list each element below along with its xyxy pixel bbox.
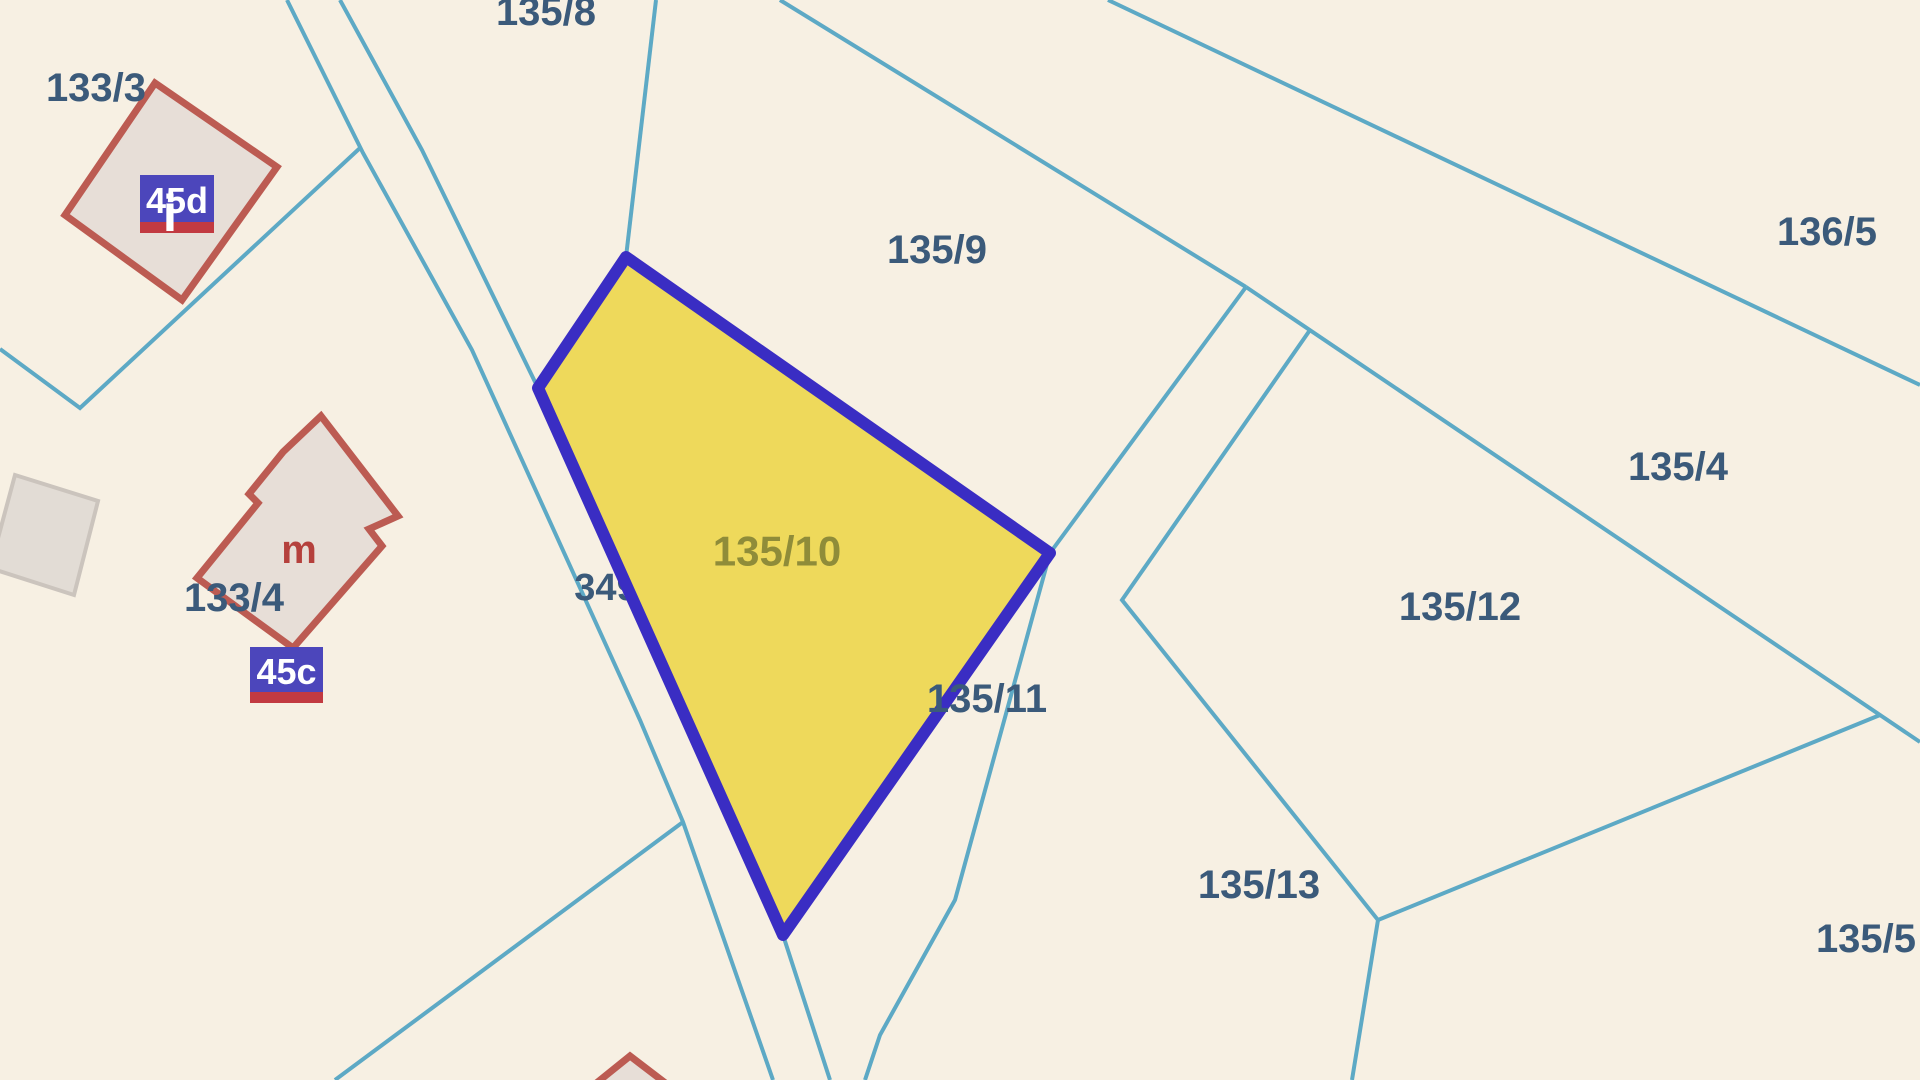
label-135-12: 135/12 <box>1399 585 1521 629</box>
label-m: m <box>281 528 317 572</box>
boundary-southwest-branch <box>335 822 683 1080</box>
boundary-135-4-south <box>1246 287 1920 742</box>
cadastral-map-viewport[interactable]: 349 133/3135/8135/9136/5135/4135/12135/1… <box>0 0 1920 1080</box>
boundary-135-9-north <box>780 0 1246 287</box>
boundary-136-5-135-4 <box>1108 0 1920 385</box>
road-east-edge-south <box>783 935 830 1080</box>
label-135-9: 135/9 <box>887 228 987 272</box>
badge-45c: 45c <box>250 647 323 703</box>
label-135-13: 135/13 <box>1198 863 1320 907</box>
building-south-partial <box>594 1056 668 1080</box>
label-133-4: 133/4 <box>184 576 285 620</box>
boundary-135-8-135-9 <box>626 0 656 257</box>
buildings-layer <box>0 83 668 1080</box>
label-135-5: 135/5 <box>1816 917 1916 961</box>
road-east-edge-north <box>340 0 538 388</box>
boundary-135-5-west <box>1378 715 1880 920</box>
label-133-3: 133/3 <box>46 66 146 110</box>
boundary-135-9-east <box>1050 287 1246 553</box>
badge-45d-info-marker-icon: i <box>163 185 177 243</box>
cadastral-map-canvas[interactable]: 349 133/3135/8135/9136/5135/4135/12135/1… <box>0 0 1920 1080</box>
boundary-135-12-west <box>1122 330 1378 1080</box>
building-grey <box>0 475 98 595</box>
label-135-8: 135/8 <box>496 0 596 34</box>
badge-45c-label: 45c <box>256 651 316 692</box>
label-136-5: 136/5 <box>1777 210 1877 254</box>
label-135-11: 135/11 <box>927 677 1047 721</box>
label-135-10: 135/10 <box>713 528 841 575</box>
badge-45c-red-strip <box>250 692 323 703</box>
badge-45d: 45di <box>140 175 214 243</box>
label-135-4: 135/4 <box>1628 445 1729 489</box>
